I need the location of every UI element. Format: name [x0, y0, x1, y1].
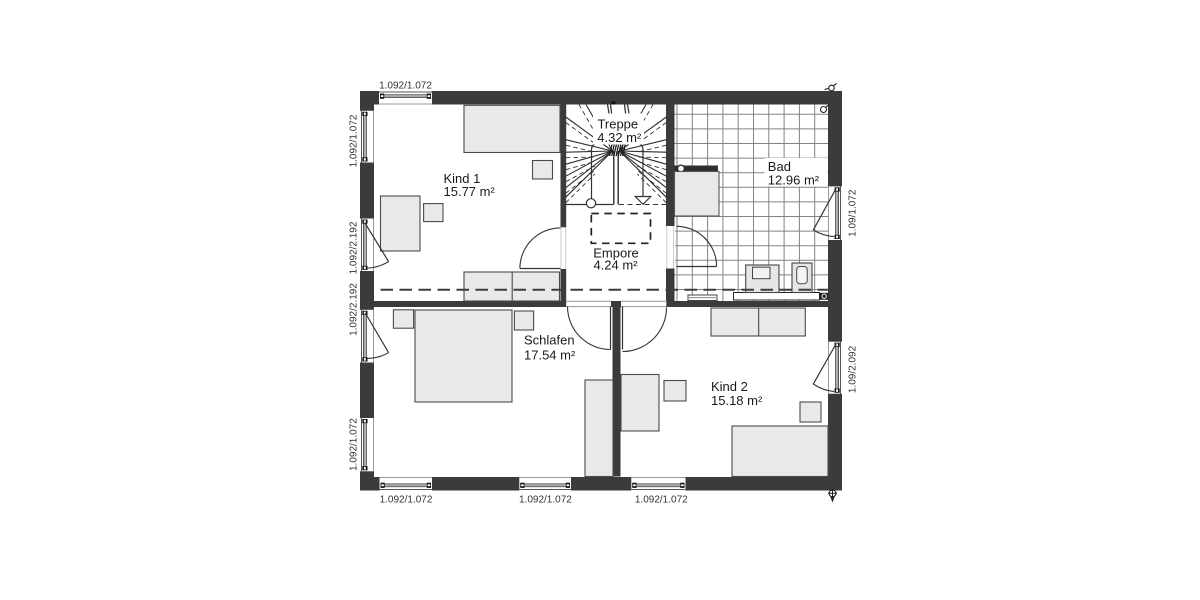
svg-text:1.092/2.192: 1.092/2.192	[349, 283, 360, 336]
svg-text:15.18 m²: 15.18 m²	[711, 393, 763, 408]
svg-text:Schlafen: Schlafen	[524, 332, 575, 347]
svg-text:4.32 m²: 4.32 m²	[597, 130, 642, 145]
svg-text:12.96 m²: 12.96 m²	[768, 172, 820, 187]
svg-text:1.09/2.092: 1.09/2.092	[848, 345, 859, 393]
svg-text:1.092/1.072: 1.092/1.072	[380, 495, 433, 506]
svg-text:1.09/1.072: 1.09/1.072	[848, 189, 859, 237]
svg-text:15.77 m²: 15.77 m²	[444, 184, 496, 199]
svg-text:1.092/1.072: 1.092/1.072	[519, 495, 572, 506]
svg-text:17.54 m²: 17.54 m²	[524, 348, 576, 363]
svg-text:Kind 2: Kind 2	[711, 379, 748, 394]
svg-text:1.092/1.072: 1.092/1.072	[635, 495, 688, 506]
svg-text:1.092/1.072: 1.092/1.072	[379, 81, 432, 92]
svg-text:1.092/2.192: 1.092/2.192	[349, 221, 360, 274]
svg-text:4.24 m²: 4.24 m²	[593, 258, 638, 273]
svg-text:1.092/1.072: 1.092/1.072	[349, 114, 360, 167]
svg-text:1.092/1.072: 1.092/1.072	[349, 418, 360, 471]
